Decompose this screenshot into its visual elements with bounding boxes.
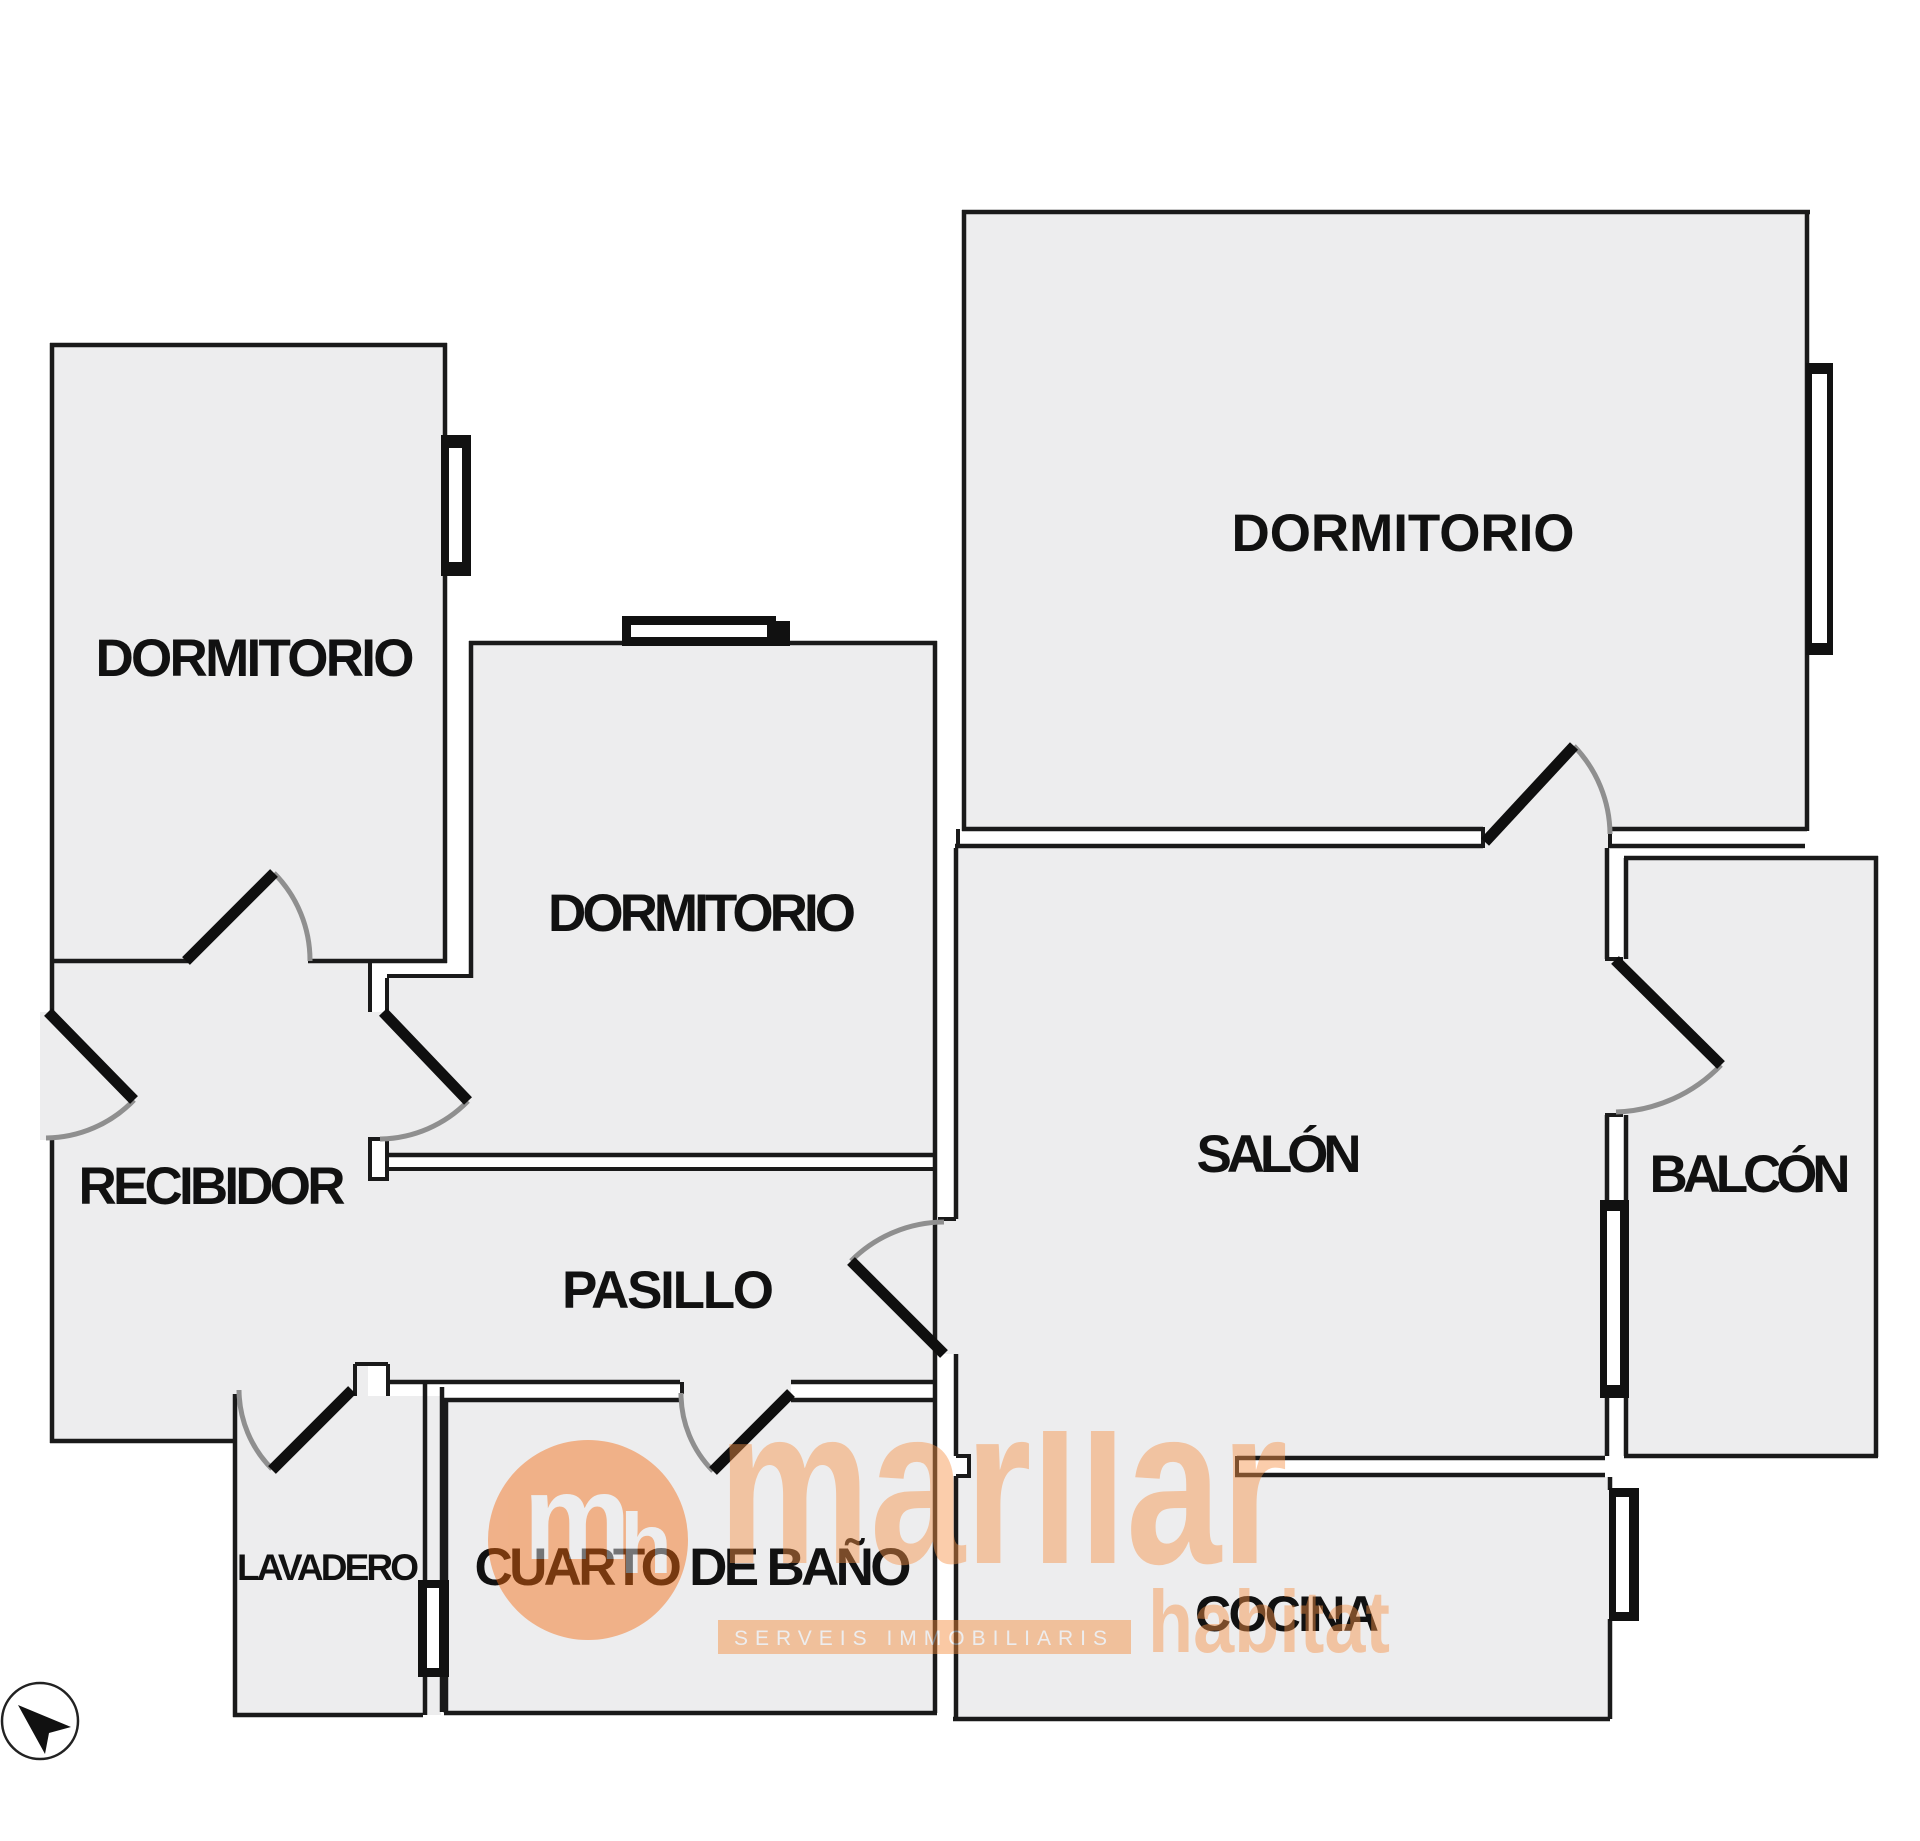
svg-text:a: a: [870, 1360, 967, 1611]
svg-text:habitat: habitat: [1148, 1572, 1390, 1671]
svg-text:r: r: [965, 1360, 1032, 1611]
svg-text:h: h: [620, 1497, 672, 1592]
svg-text:LAVADERO: LAVADERO: [237, 1547, 419, 1588]
svg-text:SALÓN: SALÓN: [1197, 1124, 1362, 1184]
svg-text:l: l: [1031, 1399, 1079, 1602]
svg-text:PASILLO: PASILLO: [562, 1261, 774, 1320]
svg-text:m: m: [718, 1360, 870, 1611]
svg-text:DORMITORIO: DORMITORIO: [548, 884, 856, 943]
svg-text:DORMITORIO: DORMITORIO: [96, 629, 415, 688]
svg-text:m: m: [523, 1449, 631, 1585]
svg-text:l: l: [1079, 1399, 1127, 1602]
svg-text:RECIBIDOR: RECIBIDOR: [79, 1157, 346, 1216]
svg-text:DORMITORIO: DORMITORIO: [1232, 504, 1575, 563]
svg-text:SERVEIS IMMOBILIARIS: SERVEIS IMMOBILIARIS: [734, 1627, 1114, 1650]
svg-text:BALCÓN: BALCÓN: [1650, 1144, 1851, 1204]
